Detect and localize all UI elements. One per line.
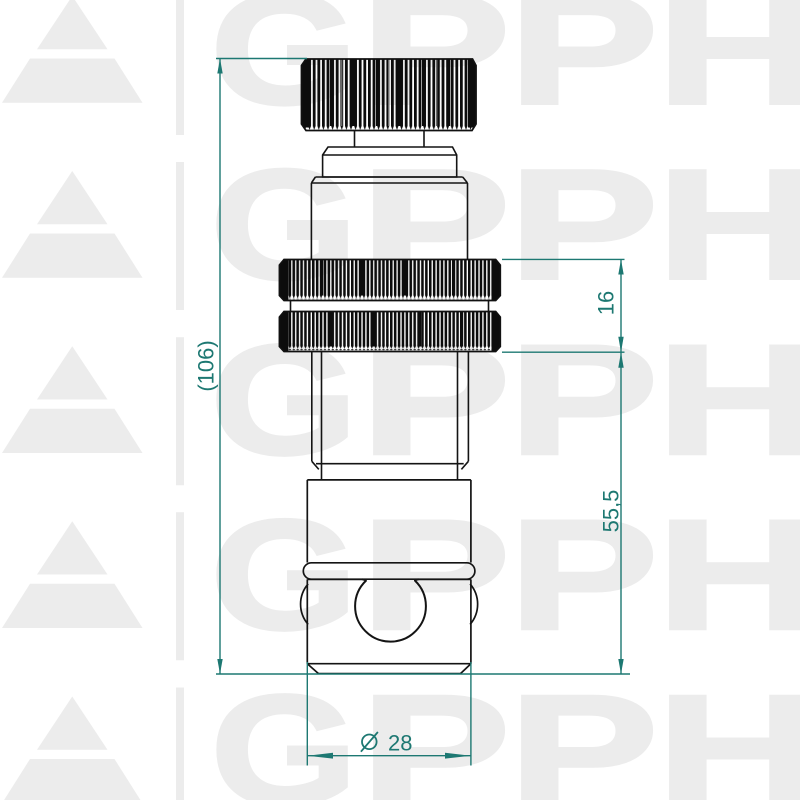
svg-text:16: 16	[594, 291, 619, 315]
svg-text:28: 28	[388, 731, 412, 756]
svg-text:(106): (106)	[194, 340, 219, 391]
svg-text:55,5: 55,5	[599, 490, 624, 533]
